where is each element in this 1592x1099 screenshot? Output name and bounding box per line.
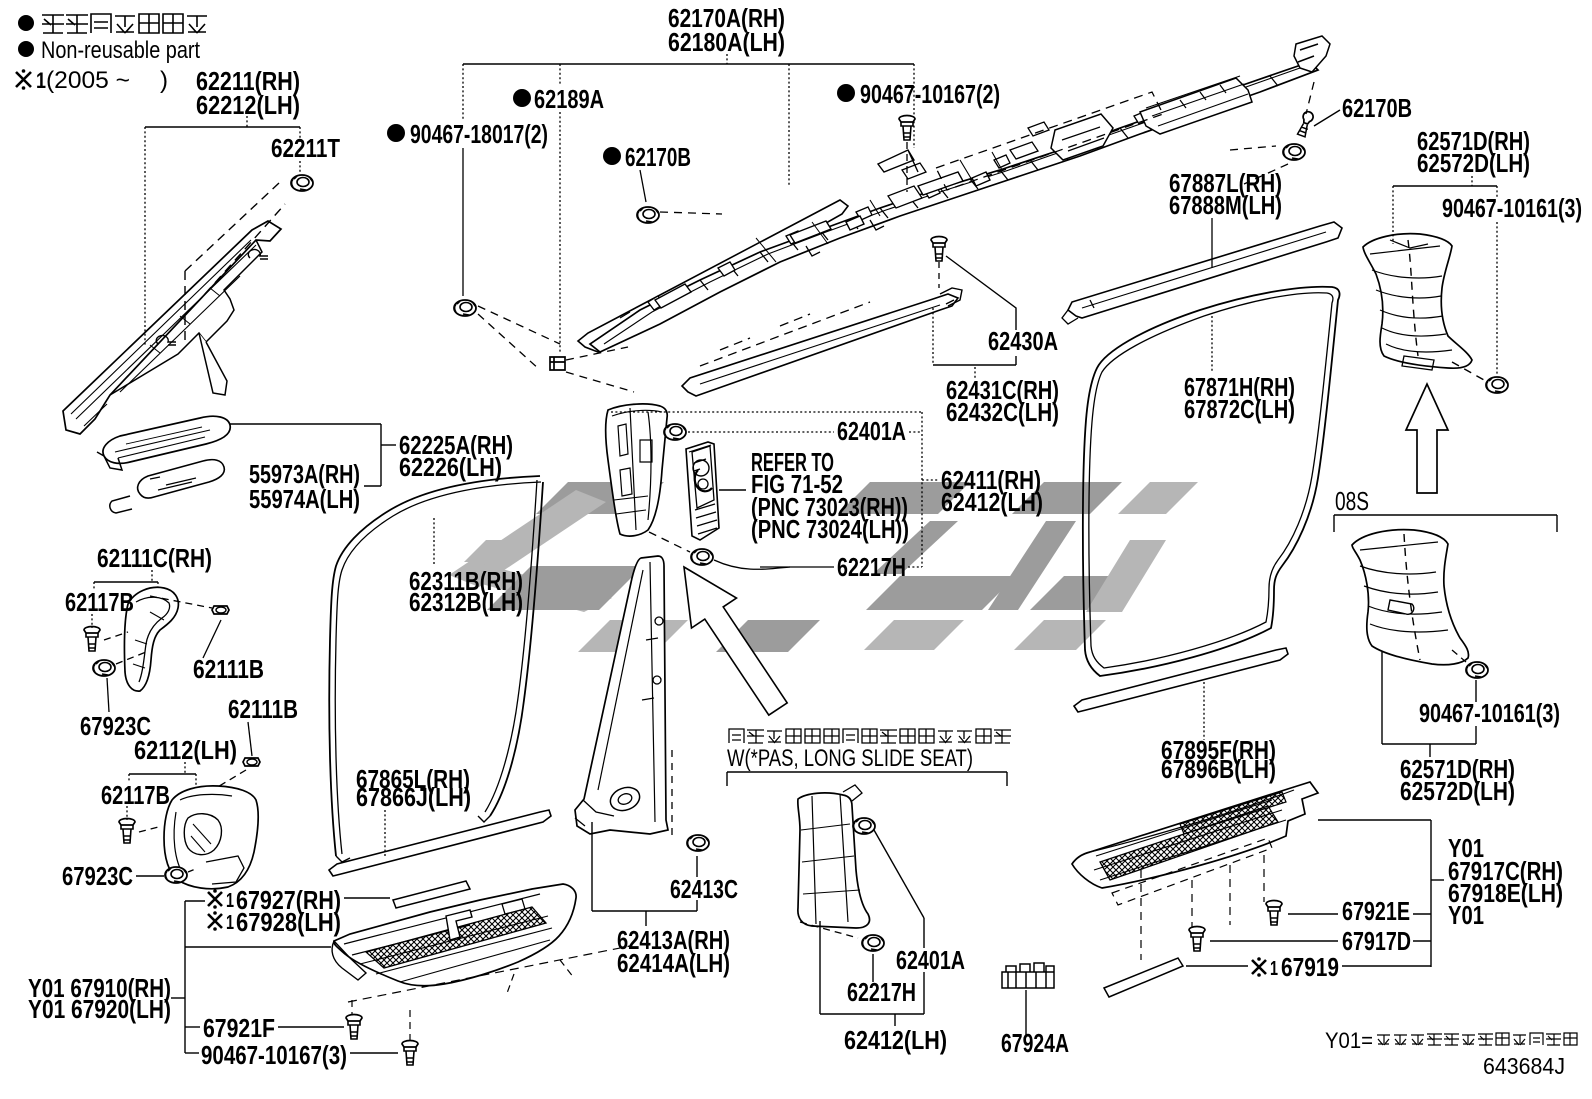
svg-text:62412(LH): 62412(LH)	[844, 1025, 947, 1055]
svg-text:67888M(LH): 67888M(LH)	[1169, 190, 1282, 220]
svg-text:67872C(LH): 67872C(LH)	[1184, 394, 1295, 424]
svg-text:62572D(LH): 62572D(LH)	[1417, 148, 1530, 178]
svg-text:67866J(LH): 67866J(LH)	[356, 782, 471, 812]
svg-text:): )	[160, 67, 168, 94]
svg-text:62226(LH): 62226(LH)	[399, 452, 502, 482]
svg-text:67917D: 67917D	[1342, 926, 1411, 956]
svg-text:62432C(LH): 62432C(LH)	[946, 397, 1059, 427]
svg-text:62413C: 62413C	[670, 874, 738, 904]
svg-text:62217H: 62217H	[837, 552, 906, 582]
svg-text:62117B: 62117B	[101, 780, 170, 810]
svg-text:67924A: 67924A	[1001, 1028, 1069, 1058]
svg-text:90467-10161(3): 90467-10161(3)	[1442, 193, 1582, 223]
svg-text:67921E: 67921E	[1342, 896, 1410, 926]
svg-text:62572D(LH): 62572D(LH)	[1400, 776, 1515, 806]
svg-text:62212(LH): 62212(LH)	[196, 90, 300, 120]
svg-text:62112(LH): 62112(LH)	[134, 735, 237, 765]
svg-text:Non-reusable part: Non-reusable part	[41, 37, 200, 64]
svg-text:67921F: 67921F	[203, 1013, 275, 1043]
svg-text:62412(LH): 62412(LH)	[941, 487, 1043, 517]
svg-text:62111B: 62111B	[228, 694, 298, 724]
svg-text:90467-10161(3): 90467-10161(3)	[1419, 698, 1560, 728]
svg-text:(PNC 73024(LH)): (PNC 73024(LH))	[751, 514, 909, 544]
svg-text:62189A: 62189A	[534, 84, 604, 114]
svg-text:62312B(LH): 62312B(LH)	[409, 587, 523, 617]
svg-text:1: 1	[226, 912, 234, 934]
svg-text:1: 1	[1270, 958, 1278, 980]
svg-text:67919: 67919	[1281, 952, 1339, 982]
svg-text:67896B(LH): 67896B(LH)	[1161, 754, 1276, 784]
svg-text:62170B: 62170B	[1342, 93, 1412, 123]
svg-text:(2005 ~: (2005 ~	[46, 67, 130, 94]
svg-text:62414A(LH): 62414A(LH)	[617, 948, 730, 978]
svg-text:Y01=: Y01=	[1325, 1028, 1373, 1053]
svg-text:62217H: 62217H	[847, 977, 916, 1007]
svg-text:55974A(LH): 55974A(LH)	[249, 484, 360, 514]
svg-text:62180A(LH): 62180A(LH)	[668, 27, 785, 57]
svg-text:90467-10167(2): 90467-10167(2)	[860, 79, 1000, 109]
svg-text:Y01: Y01	[1448, 900, 1484, 930]
svg-text:62117B: 62117B	[65, 587, 134, 617]
svg-text:62430A: 62430A	[988, 326, 1058, 356]
svg-text:62401A: 62401A	[837, 416, 906, 446]
svg-text:90467-10167(3): 90467-10167(3)	[201, 1040, 347, 1070]
svg-text:90467-18017(2): 90467-18017(2)	[410, 119, 548, 149]
svg-text:67923C: 67923C	[62, 861, 133, 891]
svg-text:62111B: 62111B	[193, 654, 264, 684]
svg-text:Y01 67920(LH): Y01 67920(LH)	[28, 994, 171, 1024]
svg-text:1: 1	[226, 890, 234, 912]
svg-text:62111C(RH): 62111C(RH)	[97, 543, 212, 573]
svg-text:62401A: 62401A	[896, 945, 965, 975]
svg-text:08S: 08S	[1335, 486, 1369, 516]
svg-text:643684J: 643684J	[1483, 1053, 1565, 1079]
svg-text:W(*PAS, LONG SLIDE SEAT): W(*PAS, LONG SLIDE SEAT)	[727, 745, 973, 772]
svg-text:62211T: 62211T	[271, 133, 340, 163]
svg-text:62170B: 62170B	[625, 142, 691, 172]
svg-text:1: 1	[36, 68, 46, 93]
svg-text:67928(LH): 67928(LH)	[236, 907, 341, 937]
